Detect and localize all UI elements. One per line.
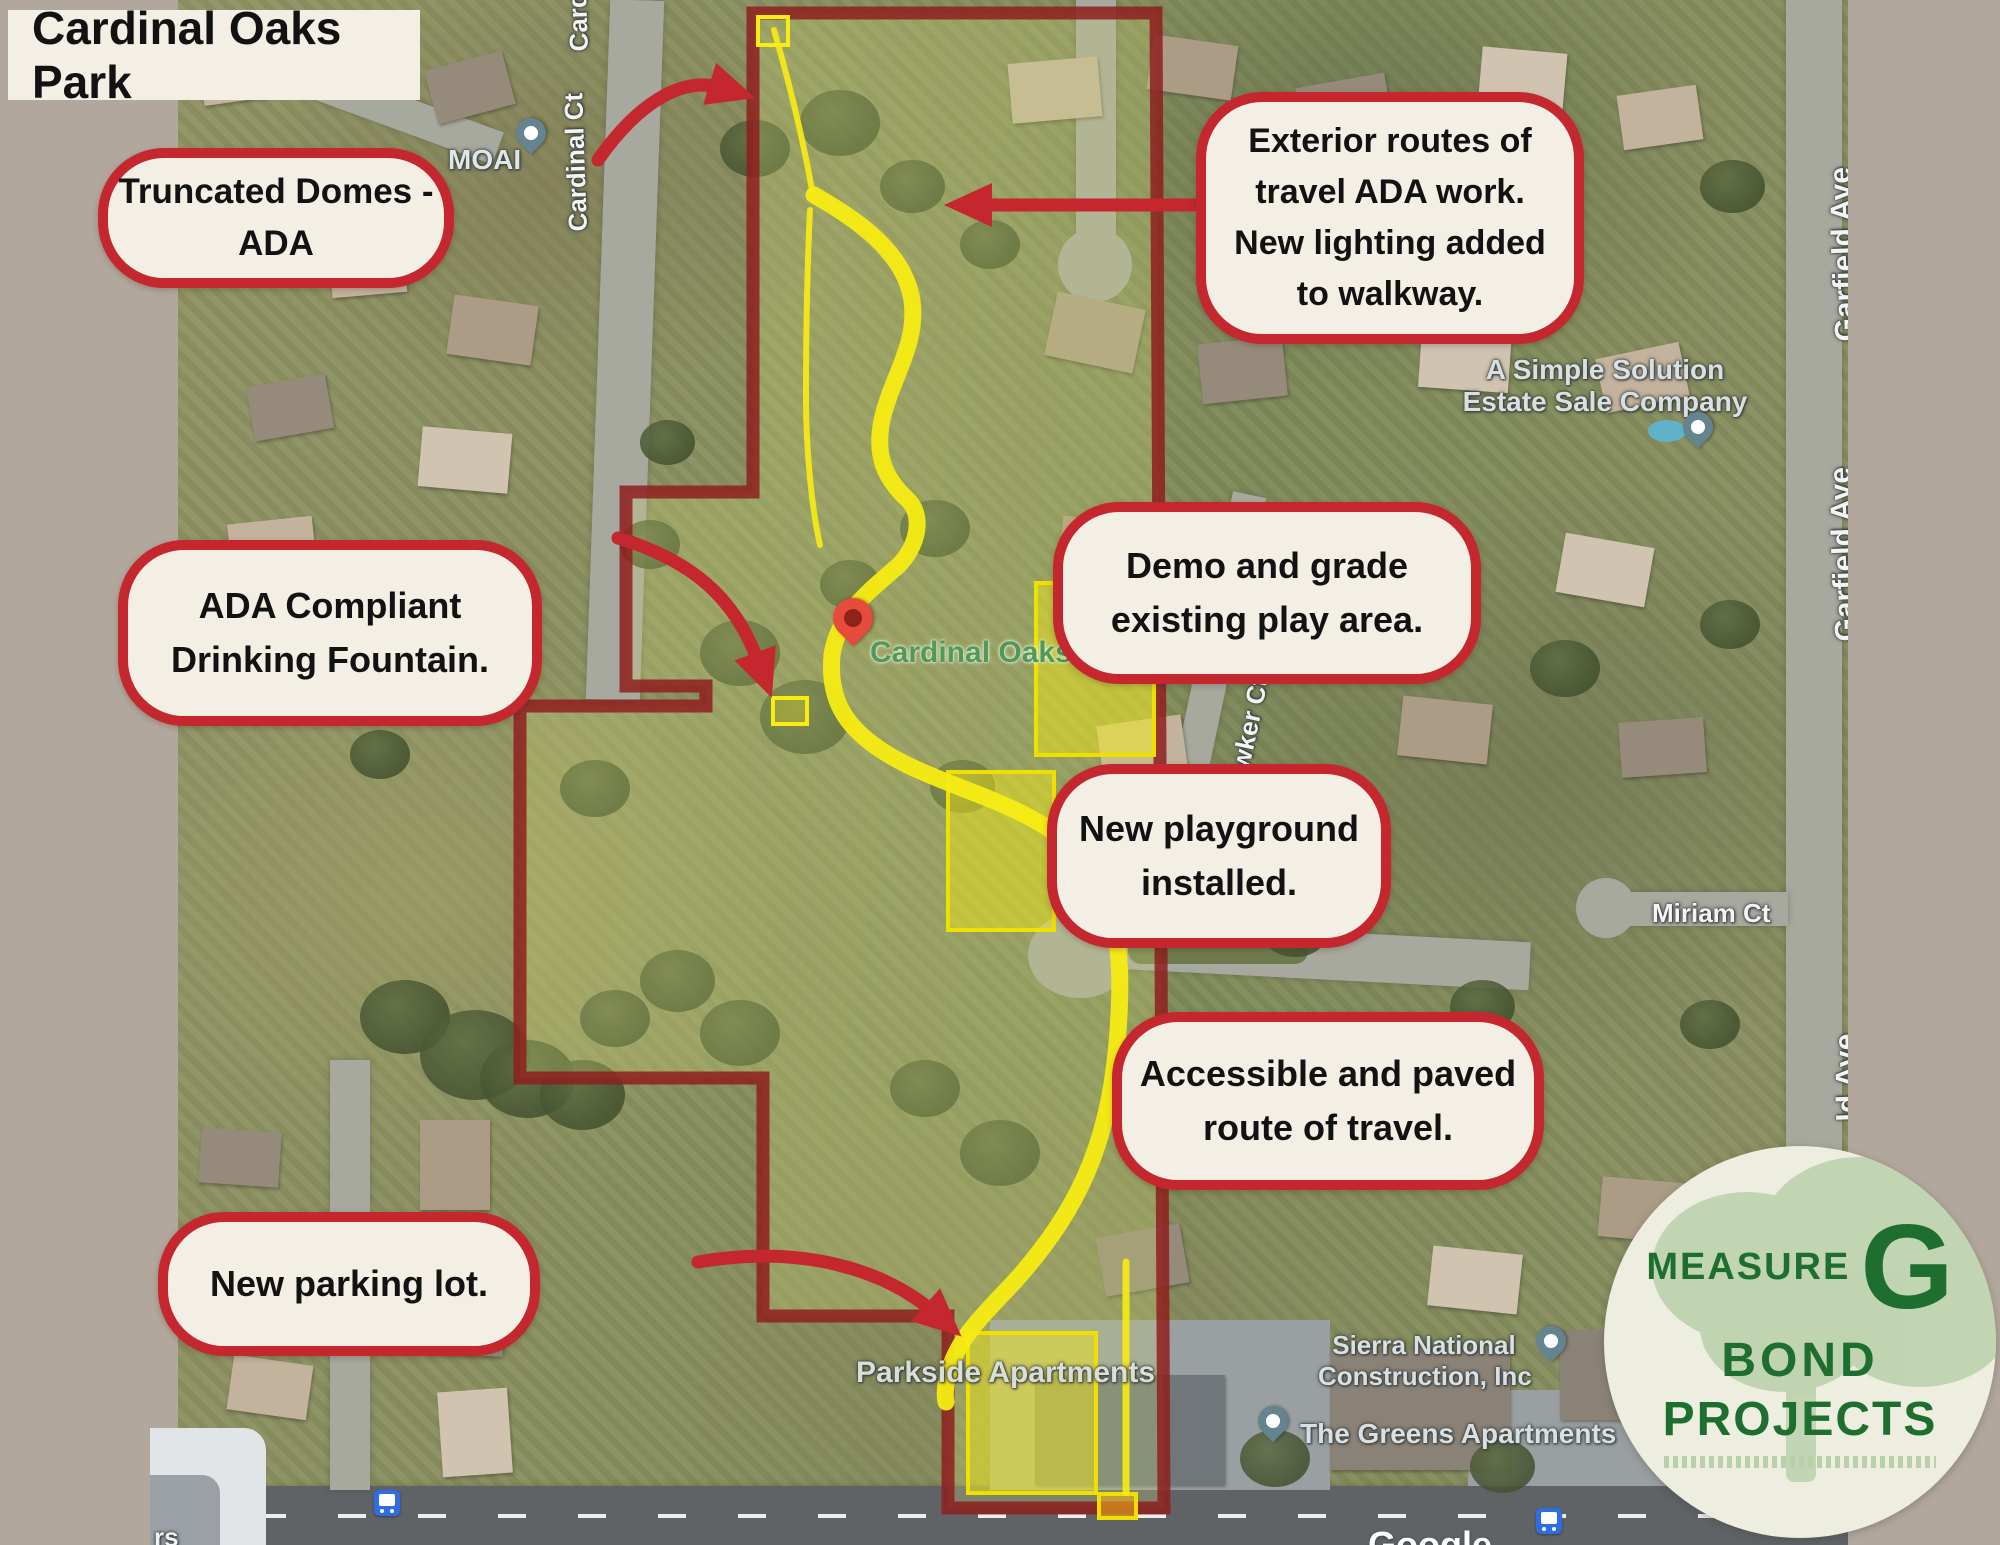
arrow-new-parking	[698, 1256, 936, 1314]
page-title: Cardinal Oaks Park	[8, 10, 420, 100]
map-texture	[420, 1120, 490, 1210]
callout-text-line: Truncated Domes -	[118, 166, 433, 219]
map-texture	[1555, 533, 1654, 608]
map-texture	[437, 1388, 513, 1478]
poi-label-line: Estate Sale Company	[1460, 386, 1750, 418]
truncated-domes-highlight	[758, 17, 788, 45]
callout-text-line: New playground	[1079, 802, 1359, 856]
callout-text-line: ADA	[238, 218, 314, 271]
map-texture	[227, 1355, 314, 1421]
callout-drinking-fountain: ADA Compliant Drinking Fountain.	[118, 540, 542, 726]
map-texture	[246, 373, 334, 441]
map-texture	[1648, 420, 1686, 442]
map-texture	[1427, 1245, 1523, 1314]
map-texture	[700, 620, 780, 686]
map-texture	[890, 1060, 960, 1117]
logo-measure-text: MEASURE	[1646, 1246, 1850, 1289]
map-texture	[580, 990, 650, 1047]
map-texture	[720, 120, 790, 177]
callout-text-line: existing play area.	[1111, 593, 1423, 647]
callout-text-line: installed.	[1141, 856, 1297, 910]
map-texture	[620, 520, 680, 569]
map-texture	[560, 760, 630, 817]
callout-new-playground: New playground installed.	[1047, 764, 1391, 948]
logo-bond-text: BOND	[1721, 1333, 1878, 1388]
bus-stop-icon-west	[374, 1490, 400, 1516]
annotated-park-map-graphic: MOAI Cardinal Ct Cardinal Ct Garfield Av…	[0, 0, 2000, 1545]
street-label-cardinal-ct-top: Cardinal Ct	[559, 0, 595, 52]
callout-text-line: Drinking Fountain.	[171, 633, 489, 687]
map-texture	[1397, 695, 1493, 764]
poi-label-line: A Simple Solution	[1460, 354, 1750, 386]
map-texture	[198, 1127, 282, 1187]
logo-projects-text: PROJECTS	[1663, 1392, 1938, 1447]
callout-truncated-domes: Truncated Domes - ADA	[98, 148, 454, 288]
map-texture	[540, 1060, 625, 1130]
callout-exterior-routes: Exterior routes of travel ADA work. New …	[1196, 92, 1584, 344]
map-texture	[1095, 1223, 1189, 1297]
map-texture	[1617, 85, 1704, 151]
poi-label-line: Construction, Inc	[1318, 1361, 1530, 1392]
map-texture	[900, 500, 970, 557]
measure-g-bond-projects-logo: MEASURE G BOND PROJECTS	[1604, 1146, 1996, 1538]
partial-label-rs: rs	[154, 1522, 179, 1545]
map-texture	[760, 680, 850, 754]
map-texture	[1700, 160, 1765, 213]
map-texture	[1008, 56, 1103, 124]
bus-stop-icon-east	[1536, 1508, 1562, 1534]
street-label-miriam-ct: Miriam Ct	[1652, 898, 1770, 929]
map-texture	[1680, 1000, 1740, 1049]
callout-text-line: Accessible and paved	[1140, 1047, 1516, 1101]
poi-label-parkside-apartments: Parkside Apartments	[856, 1356, 1155, 1390]
callout-text-line: travel ADA work.	[1255, 167, 1525, 218]
map-texture	[960, 1120, 1040, 1186]
map-texture	[1076, 0, 1116, 255]
map-texture	[1147, 34, 1239, 100]
poi-label-greens-apartments: The Greens Apartments	[1300, 1418, 1616, 1450]
map-texture	[800, 90, 880, 156]
callout-text-line: Demo and grade	[1126, 539, 1408, 593]
poi-label-simple-solution: A Simple Solution Estate Sale Company	[1460, 354, 1750, 418]
map-texture	[1618, 717, 1707, 778]
map-texture	[1044, 291, 1146, 373]
map-texture	[424, 51, 516, 125]
map-texture	[350, 730, 410, 779]
google-watermark: Google	[1368, 1524, 1492, 1545]
street-label-cardinal-ct: Cardinal Ct	[558, 92, 594, 232]
callout-text-line: New lighting added	[1234, 218, 1546, 269]
poi-label-line: Sierra National	[1318, 1330, 1530, 1361]
map-label-moai: MOAI	[448, 144, 521, 176]
callout-text-line: Exterior routes of	[1248, 116, 1531, 167]
map-texture	[700, 1000, 780, 1066]
street-label-garfield-ave-partial: ld Ave	[1829, 1033, 1848, 1122]
logo-g-letter: G	[1860, 1219, 1953, 1315]
map-texture	[178, 1514, 1848, 1518]
callout-new-parking-lot: New parking lot.	[158, 1212, 540, 1356]
callout-accessible-route: Accessible and paved route of travel.	[1112, 1012, 1544, 1190]
map-texture	[960, 220, 1020, 269]
map-texture	[640, 420, 695, 465]
map-texture	[586, 0, 664, 701]
map-texture	[418, 426, 513, 494]
callout-text-line: New parking lot.	[210, 1257, 488, 1311]
map-texture	[640, 950, 715, 1012]
poi-label-sierra-national: Sierra National Construction, Inc	[1318, 1330, 1530, 1392]
callout-text-line: route of travel.	[1203, 1101, 1453, 1155]
map-texture	[1530, 640, 1600, 697]
map-texture	[1197, 336, 1288, 405]
grass-decoration	[1664, 1456, 1936, 1468]
map-texture	[1058, 228, 1132, 302]
callout-text-line: to walkway.	[1297, 269, 1483, 320]
map-texture	[880, 160, 945, 213]
map-texture	[930, 760, 995, 813]
map-texture	[446, 294, 539, 365]
callout-text-line: ADA Compliant	[199, 579, 462, 633]
map-texture	[1576, 878, 1636, 938]
map-texture	[1035, 1375, 1225, 1485]
callout-demo-play-area: Demo and grade existing play area.	[1053, 502, 1481, 684]
map-texture	[1700, 600, 1760, 649]
